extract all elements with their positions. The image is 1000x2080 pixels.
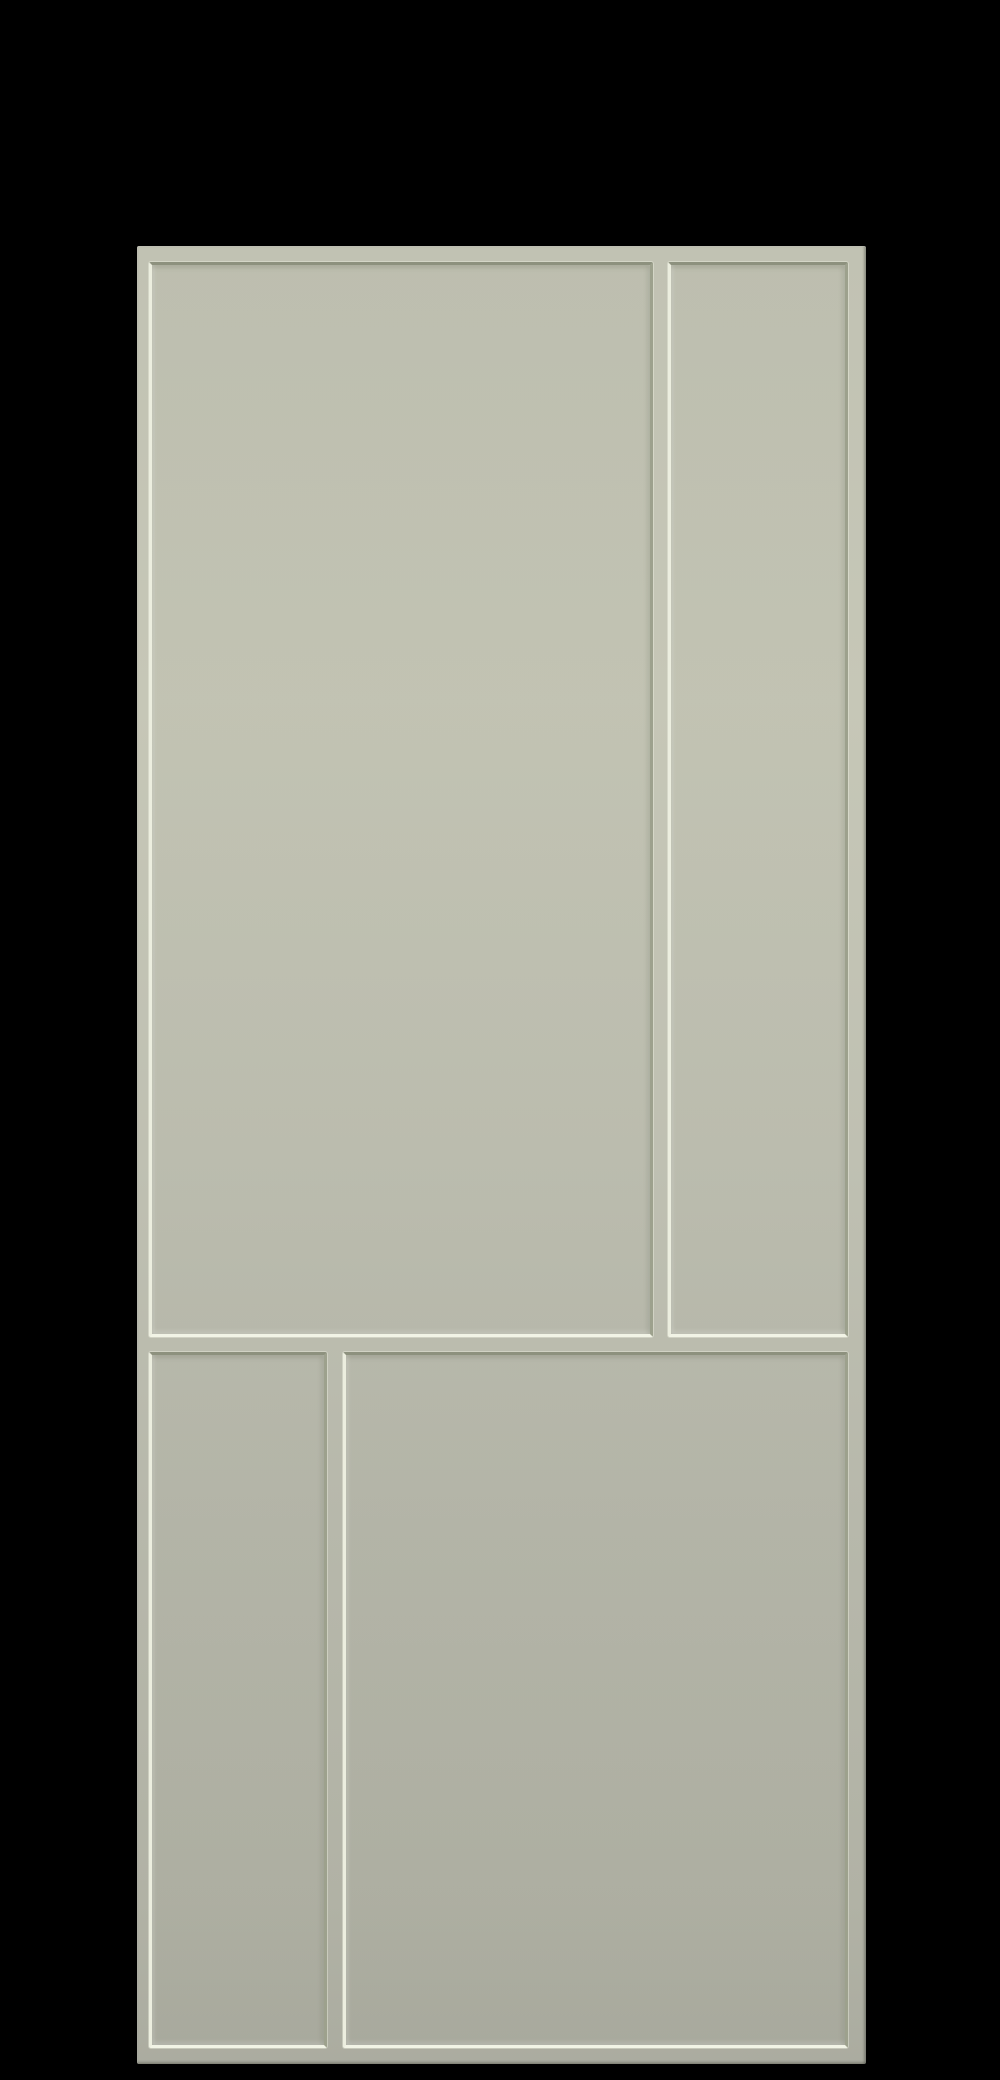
door-panel-upper-left	[149, 262, 653, 1337]
door-panel-upper-right	[668, 262, 848, 1337]
door-panel-lower-right	[343, 1352, 848, 2048]
door	[137, 246, 866, 2064]
backdrop	[0, 0, 1000, 2080]
door-panel-lower-left	[149, 1352, 327, 2048]
